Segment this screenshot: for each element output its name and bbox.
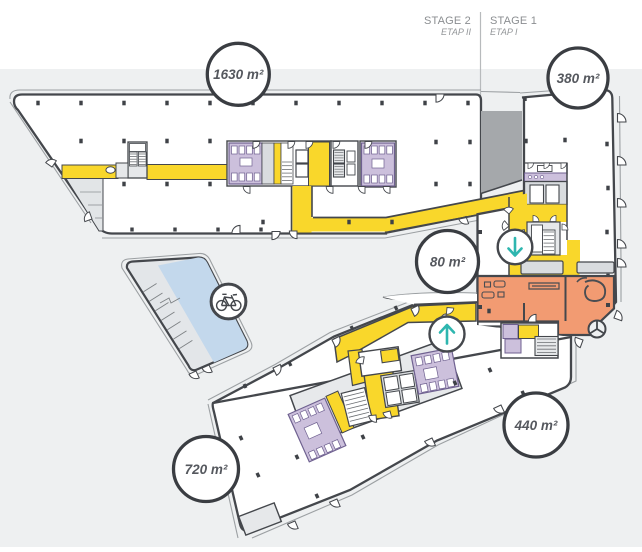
svg-text:STAGE 1: STAGE 1: [490, 15, 537, 27]
svg-text:440 m²: 440 m²: [514, 418, 558, 433]
svg-text:1630 m²: 1630 m²: [213, 67, 264, 82]
svg-text:380 m²: 380 m²: [557, 71, 600, 86]
svg-text:ETAP I: ETAP I: [490, 27, 518, 37]
svg-text:80 m²: 80 m²: [430, 254, 466, 269]
svg-text:ETAP II: ETAP II: [441, 27, 472, 37]
svg-text:STAGE 2: STAGE 2: [424, 15, 471, 27]
svg-text:720 m²: 720 m²: [185, 462, 228, 477]
